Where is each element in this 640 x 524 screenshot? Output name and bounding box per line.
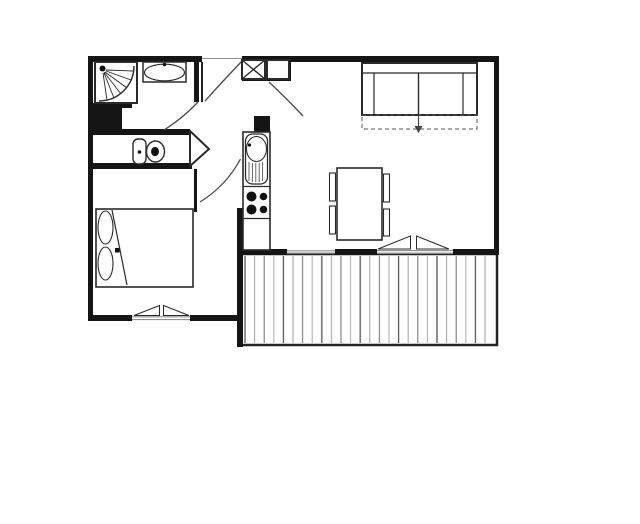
bedroom-bottom-wall-right [190,315,243,321]
washbasin-bowl [145,64,185,81]
pillow-bottom [98,247,113,280]
bathroom-door-swing [164,102,198,130]
toilet-bowl-center [151,147,159,156]
entry-door-swing [205,61,242,101]
hall-bedroom-wall-stub [194,169,197,212]
wc-top-wall [93,129,190,135]
chair-left-bottom [330,206,336,234]
kitchen-tap-dot [248,143,251,146]
wc-door-leaf [190,131,209,166]
toilet-cistern-button [138,150,142,154]
bedroom-window [132,306,190,320]
floor-plan-drawing [0,0,640,524]
entry-hall [202,59,303,117]
bedroom-balcony-wall [237,208,243,347]
living-bottom-wall-b [335,249,377,255]
chair-right-top [384,174,390,202]
dining-table [337,168,382,240]
slider-panel-right [417,236,450,249]
chair-left-top [330,173,336,201]
kitchen [243,132,270,250]
wc [133,131,209,166]
bedroom-door-swing [200,159,241,202]
living-room [287,63,477,253]
bedroom-window-panel-right [164,306,190,316]
right-wall [494,56,499,255]
balcony [240,254,497,345]
bathroom-hall-wall [194,62,199,102]
bedroom-window-panel-left [134,306,160,316]
living-window [287,251,335,253]
duct-wall-block [93,108,122,129]
washbasin-tap-dot [163,63,167,67]
living-sliding-window [377,236,453,253]
sofa-bed [362,63,477,115]
pillow-top [98,211,113,244]
balcony-deck-planks [244,256,494,343]
bed-fold-marker [115,248,120,253]
living-bottom-wall-c [453,249,499,255]
floor-plan-page [0,0,640,524]
slider-panel-left [378,236,411,249]
shower-head-dot [100,66,106,72]
left-wall [88,56,93,321]
kitchen-sink-basin [247,137,267,162]
storage-box [267,60,289,79]
bedroom-bottom-wall-left [88,315,132,321]
bedroom [96,159,241,320]
living-door-swing [269,82,303,116]
chair-right-bottom [384,209,390,236]
kitchen-wall-stub [254,116,270,132]
